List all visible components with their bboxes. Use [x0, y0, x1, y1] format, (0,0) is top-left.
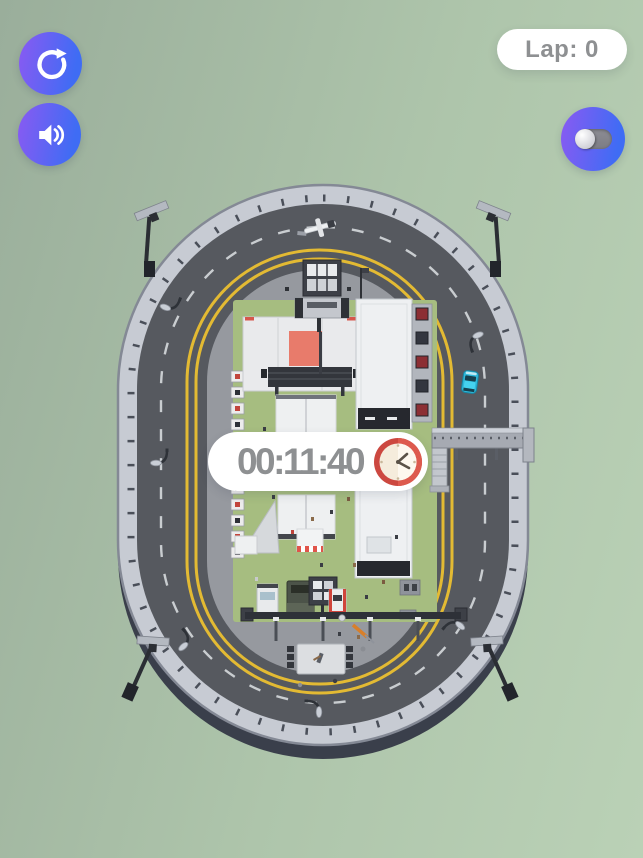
player-car: [461, 370, 479, 394]
grandstand-panels: [412, 304, 432, 422]
timer-panel: 00:11:40: [208, 432, 428, 491]
bridge-deck: [432, 432, 534, 448]
sound-stage-platform: [287, 644, 353, 674]
lap-counter: Lap: 0: [497, 29, 627, 70]
toggle-switch: [575, 129, 612, 149]
toggle-knob: [575, 129, 595, 149]
stage-screen: [289, 331, 322, 366]
food-stand: [297, 529, 323, 552]
game-screen: { "hud": { "lap": { "label": "Lap: 0" },…: [0, 0, 643, 858]
white-truck: [257, 584, 278, 614]
bridge-stairs: [432, 448, 447, 486]
timer-value: 00:11:40: [228, 441, 372, 483]
stage-rig: [268, 367, 352, 387]
stage: [243, 317, 359, 396]
clock-icon: [372, 436, 424, 488]
restart-button[interactable]: [19, 32, 82, 95]
restart-icon: [32, 45, 70, 83]
mode-toggle-button[interactable]: [561, 107, 625, 171]
sound-button[interactable]: [18, 103, 81, 166]
speaker-icon: [32, 117, 68, 153]
lap-label: Lap: 0: [525, 36, 599, 64]
